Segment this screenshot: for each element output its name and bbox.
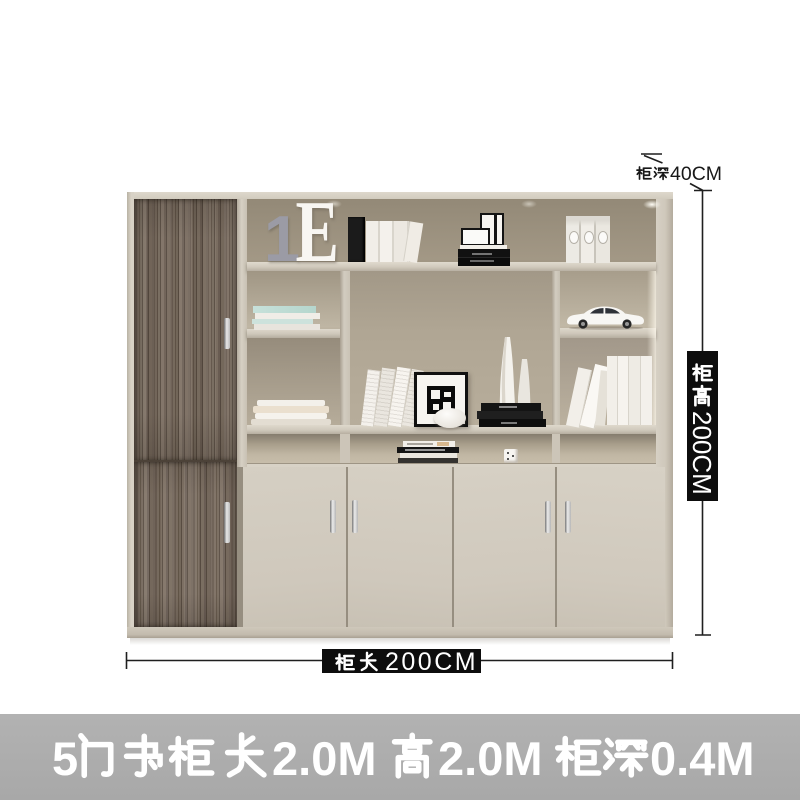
svg-text:40CM: 40CM [670, 163, 722, 185]
svg-text:200CM: 200CM [385, 648, 478, 676]
svg-text:2.0M: 2.0M [438, 732, 543, 785]
svg-text:5: 5 [52, 732, 78, 785]
svg-text:0.4M: 0.4M [650, 732, 755, 785]
svg-text:2.0M: 2.0M [272, 732, 377, 785]
svg-text:200CM: 200CM [687, 411, 717, 495]
